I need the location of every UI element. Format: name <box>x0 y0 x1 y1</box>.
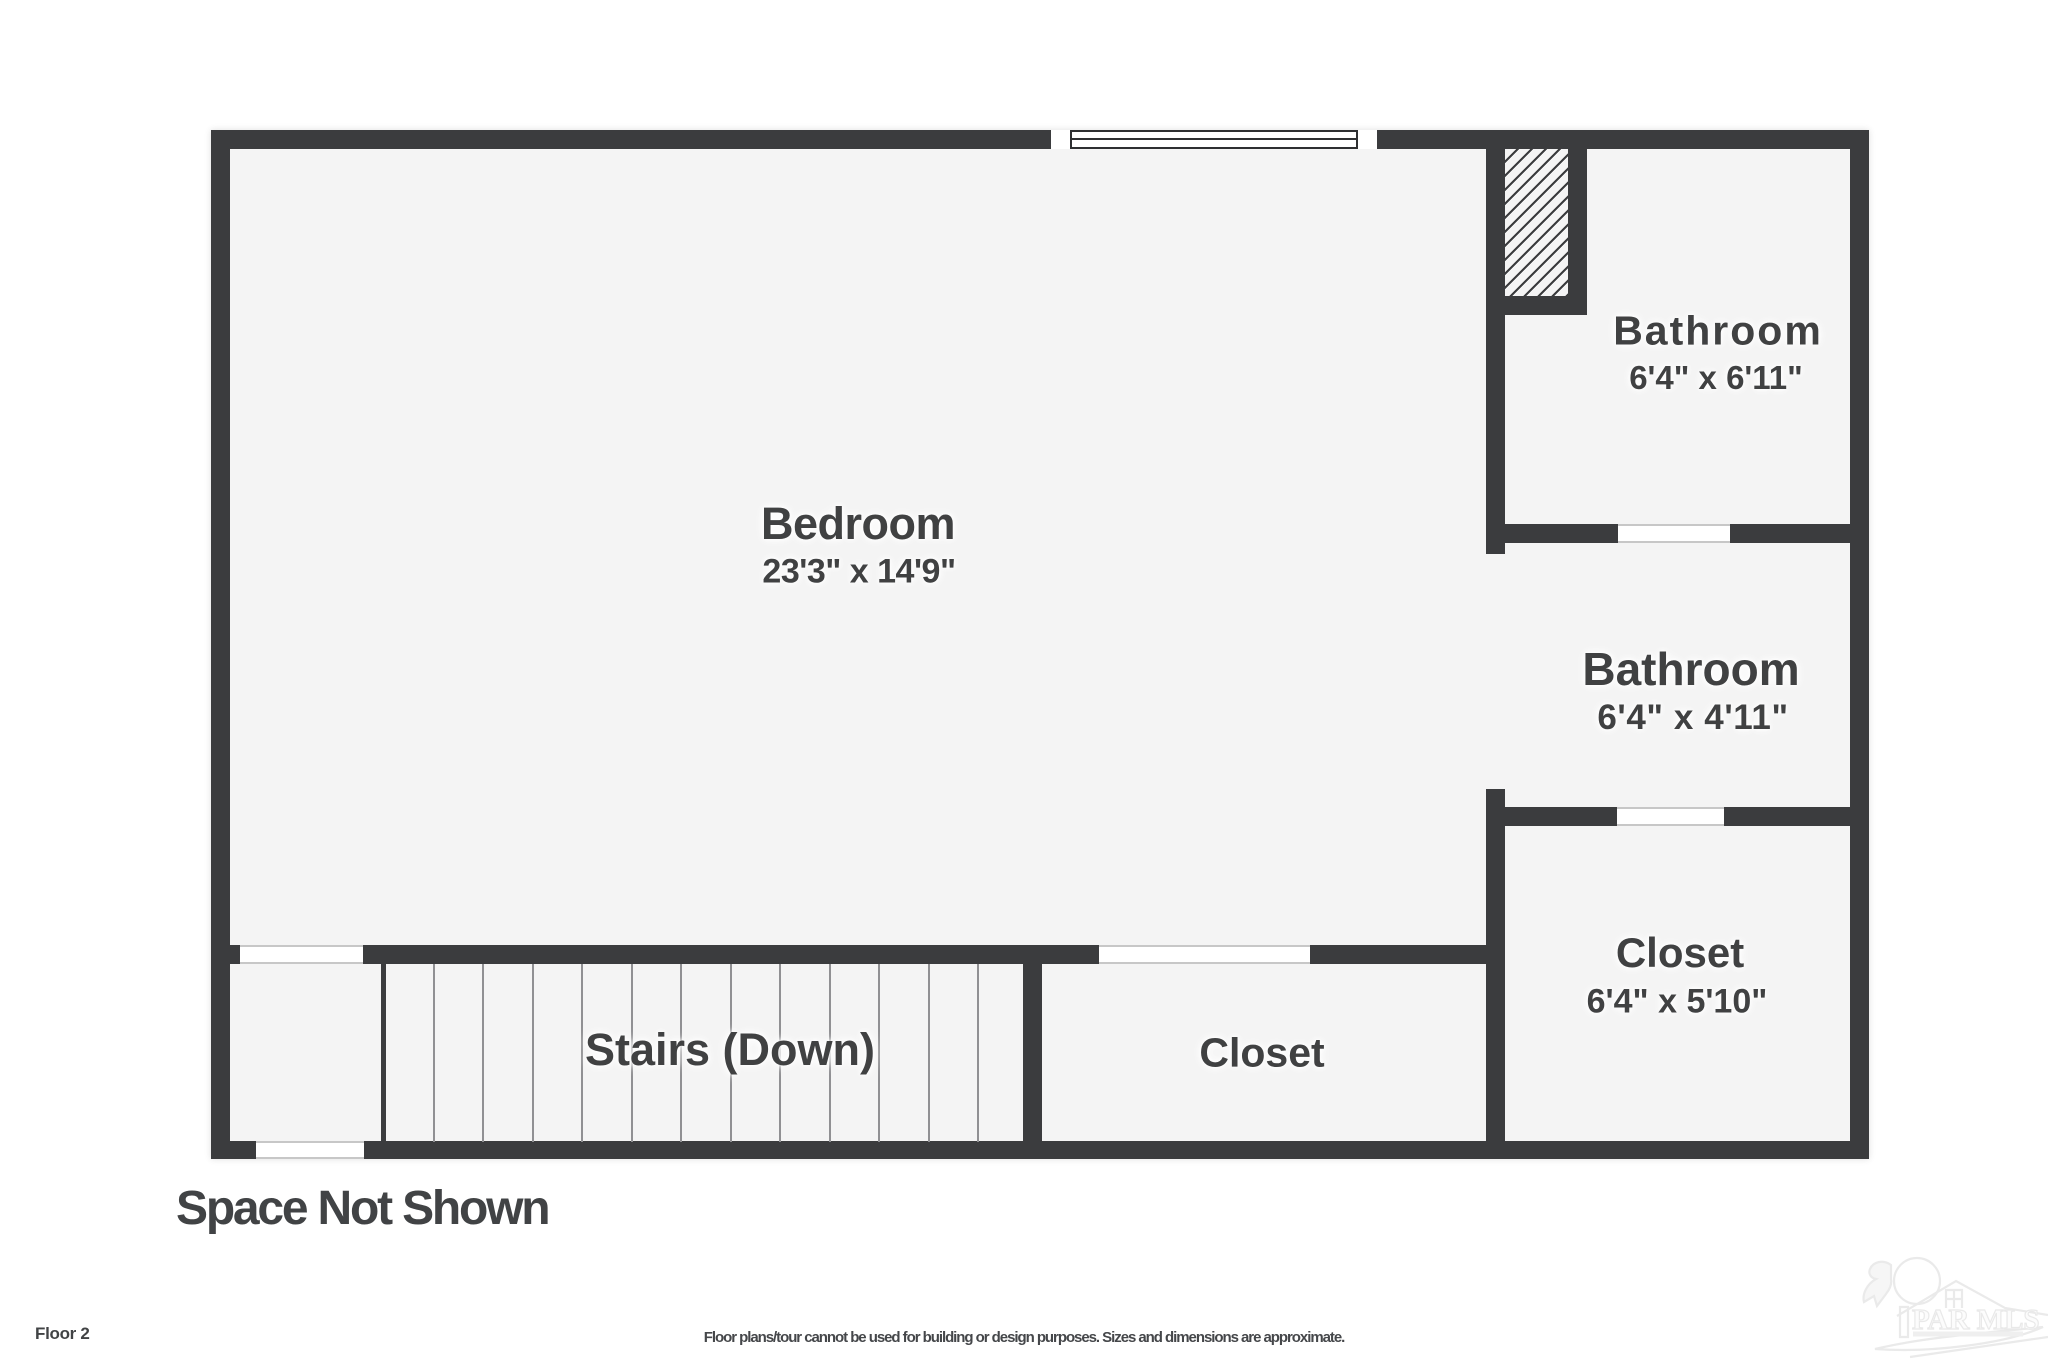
svg-text:PAR MLS: PAR MLS <box>1912 1304 2040 1336</box>
